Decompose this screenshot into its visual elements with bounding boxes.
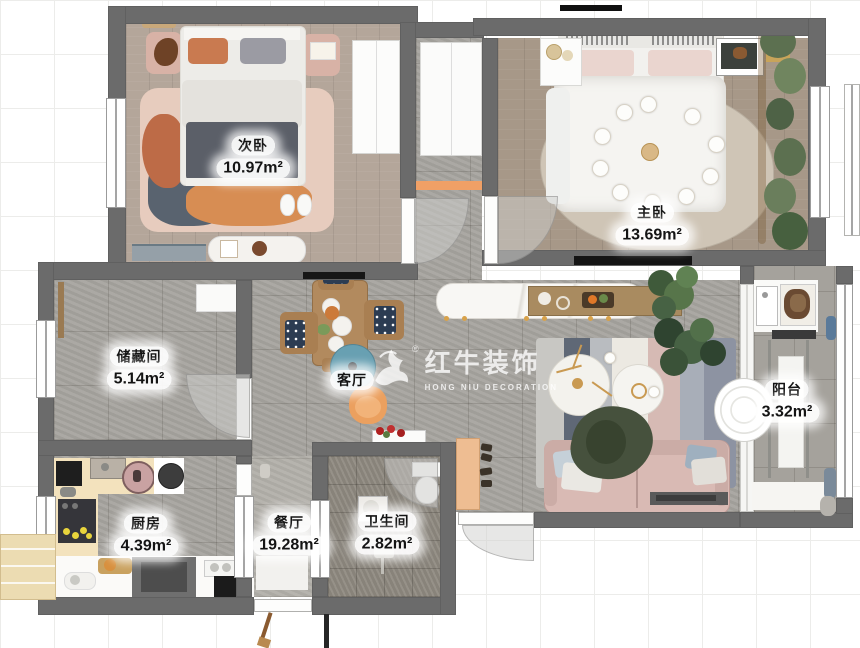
hall-cabinet [420,42,482,156]
wall [473,18,826,36]
shoe-cabinet [456,438,480,510]
lemon [86,533,92,539]
room-label-balcony: 阳台 3.32m² [755,380,820,423]
storage-shelf-strip [58,282,64,338]
lamp-bulb [648,386,660,398]
dresser [132,244,206,261]
bed-foot-strip [186,178,298,186]
wardrobe [352,40,400,154]
stool-dot [524,316,529,321]
wall [312,597,456,615]
wall [38,440,252,456]
console-plate [538,292,551,305]
pillow-gray [240,38,286,64]
pillow-orange [188,38,228,64]
stove-inner [141,562,187,592]
gold-tray [562,50,573,61]
chandelier-bulb [592,160,609,177]
room-label-master-bedroom: 主卧 13.69m² [615,203,689,246]
plant [764,178,796,214]
entry-door-swing-arc [462,525,534,561]
chandelier-center [641,143,659,161]
stool-dot [588,316,593,321]
room-label-second-bedroom: 次卧 10.97m² [216,136,290,179]
window [106,98,126,208]
room-name: 餐厅 [267,513,311,533]
master-duvet [554,76,726,212]
room-area: 13.69m² [615,226,689,246]
nightstand [540,38,582,86]
room-name: 主卧 [630,203,674,223]
wall [236,456,252,464]
dish [70,575,80,585]
exterior-cabinet [0,534,56,600]
fruit [104,559,116,571]
decor-frame [220,240,238,258]
wall [836,266,853,284]
monstera-plant [660,348,688,376]
fruit-orange [588,295,597,304]
lamp-ring [631,383,647,399]
wall [236,578,252,597]
room-name: 次卧 [231,136,275,156]
basin-detail [133,470,141,482]
pot [158,463,184,489]
lemon [63,528,70,535]
hanging-clothes [826,316,836,340]
fruit-green [599,294,608,303]
cloth-blob [820,496,836,516]
flower-red [397,429,405,437]
lamp-bulb [604,352,616,364]
wall [236,280,252,378]
room-area: 3.32m² [755,403,820,423]
chandelier-bulb [702,168,719,185]
gold-tray [546,44,562,60]
sofa-pillow [691,456,728,485]
faucet [762,292,768,298]
faucet [101,463,109,471]
shower-stem [381,556,384,574]
plant-vine [758,28,766,244]
slipper [297,194,312,216]
room-name: 储藏间 [109,347,168,367]
hanging-clothes [824,468,836,498]
cooktop-knob [72,503,78,509]
drain-pipe-line [324,614,329,648]
wall-hook [260,464,270,478]
plant [774,58,806,94]
room-label-kitchen: 厨房 4.39m² [114,514,179,557]
tv-dining [303,272,365,279]
door-panel [401,198,415,264]
magazine [310,42,336,60]
room-name: 阳台 [765,380,809,400]
room-label-storage: 储藏间 5.14m² [107,347,172,390]
flower-leaf [383,431,390,438]
room-label-bathroom: 卫生间 2.82m² [355,512,420,555]
entry-door-panel [458,512,534,525]
chair-cushion [285,320,305,348]
shelf-bar [772,330,816,339]
duvet-drape [546,88,570,204]
wall [482,38,498,196]
floor-plan: 次卧 10.97m² 主卧 13.69m² 储藏间 5.14m² 客厅 阳台 3… [0,0,860,648]
shoes [481,480,492,487]
brand-watermark: ® 红牛装饰 HONG NIU DECORATION [366,338,586,396]
wall [400,22,416,198]
brand-subtitle: HONG NIU DECORATION [425,383,558,392]
brand-name: 红牛装饰 [425,343,558,380]
lemon [72,532,79,539]
chandelier-bulb [612,184,629,201]
greens [317,324,330,335]
chandelier-bulb [708,136,725,153]
media-bench-inner [656,495,716,501]
watermark-text: 红牛装饰 HONG NIU DECORATION [425,343,558,392]
fridge [56,461,82,486]
window [234,496,254,578]
room-area: 2.82m² [355,535,420,555]
plant [676,266,698,288]
door-panel [254,599,312,612]
chair-cushion [374,306,396,334]
pillow-pink-right [648,50,712,76]
room-area: 4.39m² [114,537,179,557]
sink-bowl [210,563,219,572]
sink-bowl [222,563,231,572]
stool-dot [462,316,467,321]
window [810,86,830,218]
chandelier-bulb [684,108,701,125]
slipper [280,194,295,216]
exterior-window-strip [844,84,860,236]
plant [772,212,808,250]
stool-dot [606,316,611,321]
console-ring [556,296,570,310]
chandelier-bulb [594,128,611,145]
window [36,320,56,398]
bull-logo-icon [366,341,418,393]
wall [740,266,754,286]
door-panel [484,196,498,264]
chandelier-bulb [640,96,657,113]
plant [652,296,676,320]
duvet [182,80,302,128]
plant [774,138,806,176]
lounge-chair-seat [355,396,381,418]
broom-head [257,636,271,648]
stool-dot [444,316,449,321]
wall [836,498,853,514]
kettle [60,487,76,497]
room-area: 5.14m² [107,370,172,390]
cooktop-knob [62,503,68,509]
wall [312,456,328,500]
decor-bowl [252,241,267,256]
door-panel [236,464,252,496]
room-area: 10.97m² [216,159,290,179]
floor-mat [256,556,308,590]
room-label-dining-room: 餐厅 19.28m² [252,513,326,556]
wall [108,6,418,24]
dish-tray [64,572,96,590]
clothes-pile [790,294,806,312]
fruit-tray [582,292,614,308]
tv-living [574,256,692,265]
registered-mark: ® [412,344,419,354]
plant [766,98,794,130]
wall-art-detail [733,47,747,59]
wall [38,597,254,615]
room-name: 卫生间 [357,512,416,532]
throw-blanket-fold [586,420,626,464]
bowl-orange [325,306,339,320]
wall [440,442,456,615]
wall [534,512,740,528]
room-area: 19.28m² [252,536,326,556]
chandelier-bulb [616,104,633,121]
stool-dot [542,316,547,321]
room-name: 厨房 [124,514,168,534]
monstera-plant [690,318,714,342]
wall [312,578,328,597]
window [836,284,853,498]
monstera-plant [700,340,726,366]
wall [740,512,853,528]
wall [312,442,456,456]
legend-bar [560,5,622,11]
